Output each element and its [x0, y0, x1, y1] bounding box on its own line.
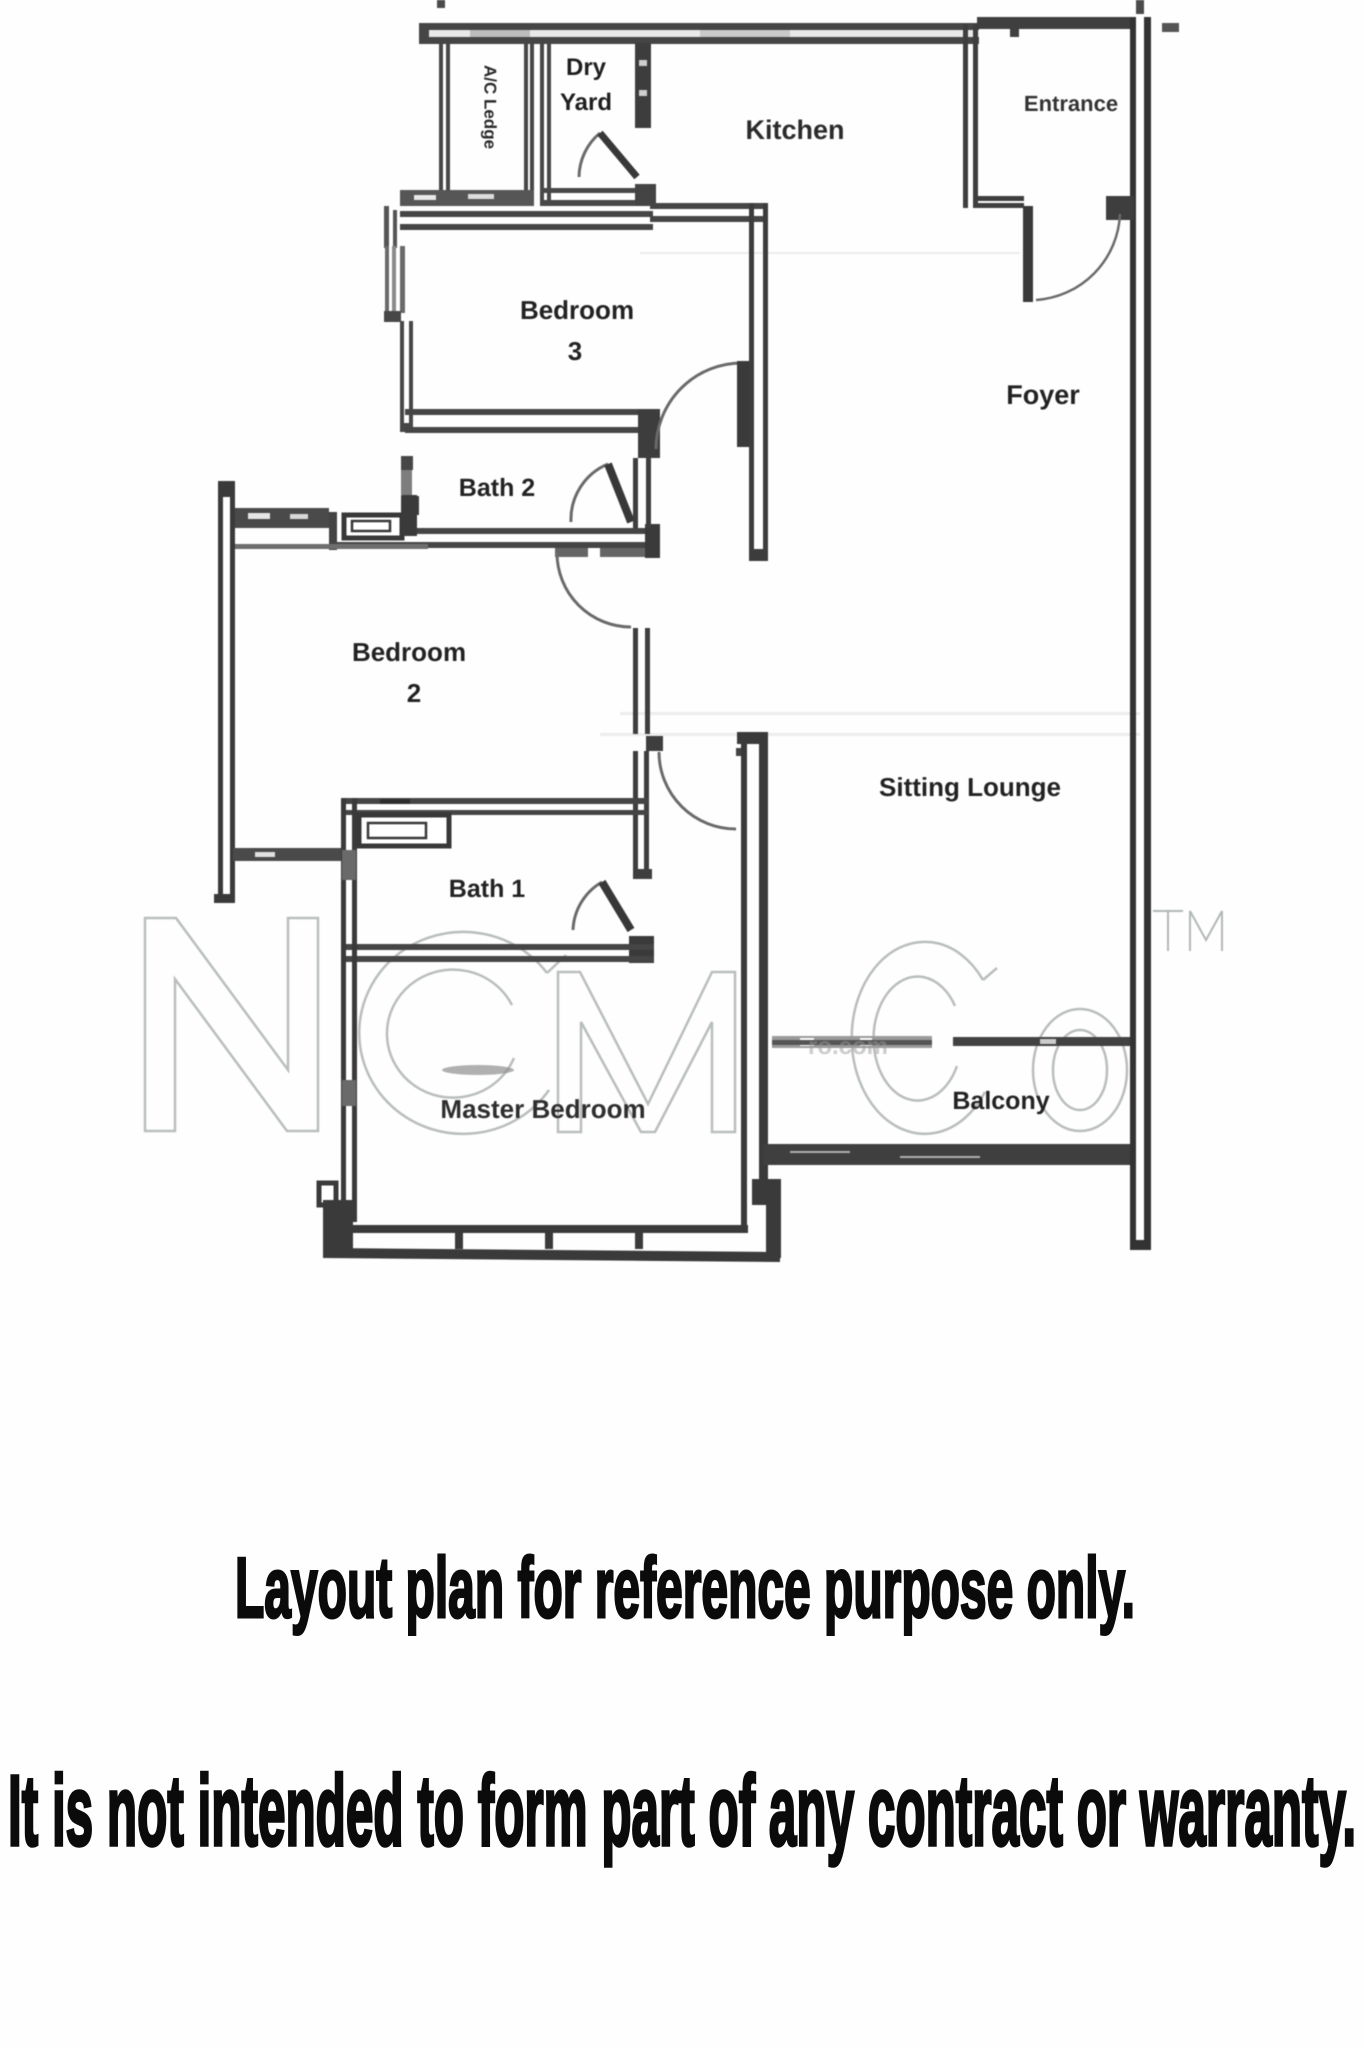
svg-text:Bedroom: Bedroom [352, 637, 466, 667]
svg-text:ro.com: ro.com [808, 1033, 888, 1060]
svg-text:Kitchen: Kitchen [745, 115, 844, 145]
svg-text:Bedroom: Bedroom [520, 295, 634, 325]
svg-text:3: 3 [568, 336, 582, 366]
svg-text:Yard: Yard [560, 89, 612, 116]
svg-text:Master Bedroom: Master Bedroom [440, 1094, 645, 1124]
svg-text:Balcony: Balcony [952, 1087, 1049, 1115]
svg-text:Dry: Dry [566, 54, 607, 81]
svg-text:A/C Ledge: A/C Ledge [481, 65, 500, 149]
svg-text:Bath 1: Bath 1 [449, 875, 526, 903]
svg-text:2: 2 [407, 678, 421, 708]
svg-text:Entrance: Entrance [1024, 91, 1118, 116]
svg-text:Foyer: Foyer [1006, 380, 1080, 410]
svg-text:Sitting Lounge: Sitting Lounge [879, 772, 1061, 802]
svg-text:Bath 2: Bath 2 [459, 474, 535, 502]
